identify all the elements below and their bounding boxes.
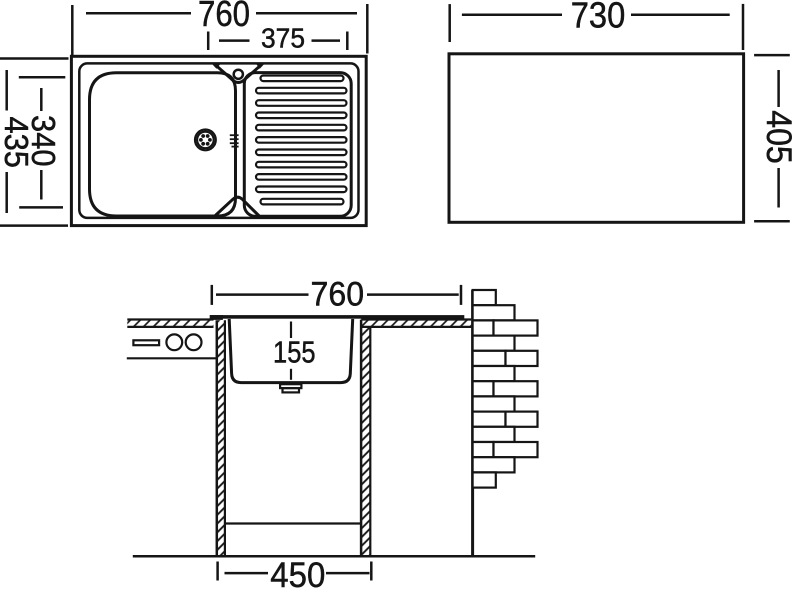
svg-text:435: 435 [0,116,35,168]
svg-text:155: 155 [273,335,316,370]
svg-text:450: 450 [270,556,325,592]
svg-text:730: 730 [571,0,626,35]
svg-text:375: 375 [261,22,305,53]
svg-text:760: 760 [198,0,250,34]
svg-text:760: 760 [311,275,365,313]
svg-text:405: 405 [759,110,793,164]
